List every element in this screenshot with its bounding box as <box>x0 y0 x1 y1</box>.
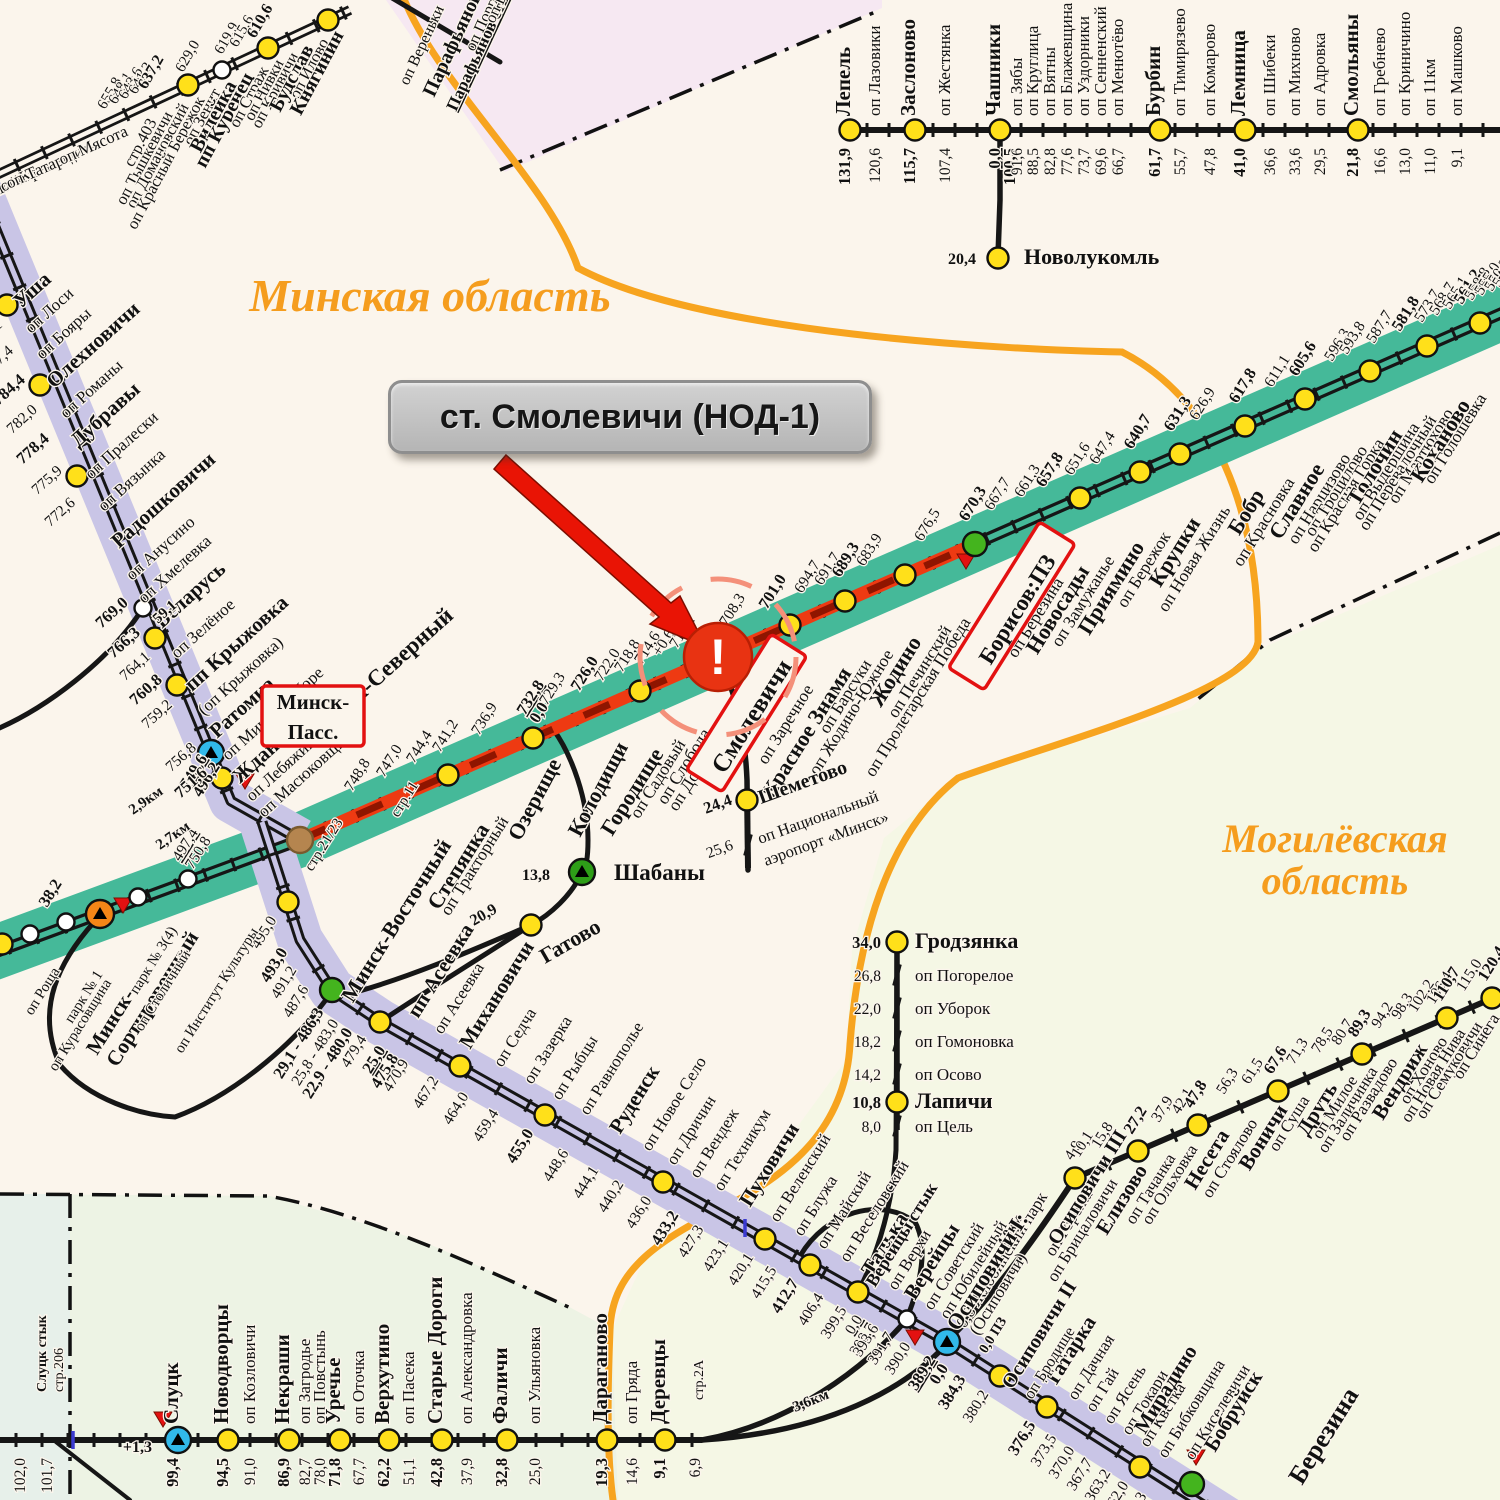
station-label: оп Ульяновка <box>525 1326 544 1424</box>
km-label: 41,0 <box>1230 148 1249 177</box>
km-label: 120,6 <box>867 148 884 183</box>
lepel-line-station-dot <box>1348 120 1369 141</box>
minsk-pass-box-text: Пасс. <box>288 720 339 744</box>
station-label: оп Комарово <box>1200 24 1219 116</box>
vileyka-nw-line-station-dot <box>214 62 231 79</box>
osipovichi-se-line-station-dot <box>848 1282 869 1303</box>
slutsk-line-station-dot <box>597 1430 618 1451</box>
km-label: 67,7 <box>351 1458 368 1485</box>
vendrizh-ne-line-station-dot <box>1482 988 1500 1009</box>
km-label: 107,4 <box>937 148 954 183</box>
station-label: Заслоново <box>896 19 920 116</box>
station-label: оп Козловичи <box>240 1325 259 1424</box>
km-label: 24,4 <box>701 790 735 818</box>
moscow-line-station-dot <box>22 926 39 943</box>
station-label: оп Гребнево <box>1370 28 1389 116</box>
station-label: Дараганово <box>588 1313 612 1424</box>
vileyka-nw-line-station-dot <box>178 75 199 96</box>
station-label: оп Адровка <box>1310 32 1329 116</box>
km-label: 101,7 <box>39 1458 56 1493</box>
km-label: 91,0 <box>242 1458 259 1485</box>
slutsk-line-station-dot <box>330 1430 351 1451</box>
slutsk-line-station-dot <box>218 1430 239 1451</box>
km-label: 26,8 <box>854 968 881 985</box>
osipovichi-se-line-station-dot <box>899 1311 916 1328</box>
lepel-line-station-dot <box>1150 120 1171 141</box>
callout-text: ст. Смолевичи (НОД-1) <box>440 398 820 437</box>
km-label: 16,6 <box>1372 148 1389 175</box>
slutsk-line-station-dot <box>655 1430 676 1451</box>
km-label: 25,0 <box>527 1458 544 1485</box>
map-label: 2,9км <box>126 784 166 819</box>
map-label: Шабаны <box>614 860 705 885</box>
station-label: Смольяны <box>1339 14 1363 116</box>
km-label: 772,6 <box>41 494 78 530</box>
exclamation-glyph: ! <box>710 629 727 685</box>
km-label: 775,9 <box>28 462 65 498</box>
moscow-line-station-dot <box>1360 361 1381 382</box>
shemetovo-line-station-dot <box>737 790 758 811</box>
pointer-arrow <box>494 455 706 647</box>
km-label: 32,8 <box>492 1458 511 1487</box>
station-label: оп Машково <box>1447 26 1466 116</box>
station-label: оп 11км <box>1420 59 1439 116</box>
station-label: Бурбин <box>1141 46 1165 116</box>
moscow-line-station-dot <box>58 914 75 931</box>
lepel-line-station-dot <box>1235 120 1256 141</box>
vendrizh-ne-line-station-dot <box>1128 1141 1149 1162</box>
station-label: Уречье <box>321 1358 345 1424</box>
km-label: 91,6 <box>1009 148 1026 175</box>
osipovichi-se-line-station-dot <box>755 1229 776 1250</box>
km-label: 13,0 <box>1397 148 1414 175</box>
station-label: оп Александровка <box>457 1292 476 1424</box>
station-label: оп Криничино <box>1395 12 1414 116</box>
hrodzianka-line-station-dot <box>887 1092 908 1113</box>
map-label: 13,8 <box>522 867 550 884</box>
km-label: 82,8 <box>1042 148 1059 175</box>
minsk-pass-box: Минск-Пасс. <box>262 686 364 746</box>
station-label: оп Шибеки <box>1260 35 1279 116</box>
station-label: Гродзянка <box>915 928 1018 953</box>
station-label: Слуцк <box>159 1361 183 1424</box>
moscow-line-station-dot <box>287 827 313 853</box>
km-label: 33,6 <box>1287 148 1304 175</box>
map-label: Новолукомль <box>1024 244 1160 269</box>
km-label: 22,0 <box>854 1001 881 1018</box>
km-label: 42,8 <box>427 1458 446 1487</box>
osipovichi-se-line-station-dot <box>1130 1457 1151 1478</box>
km-label: 69,6 <box>1093 148 1110 175</box>
station-label: Лемница <box>1226 30 1250 116</box>
km-label: 99,4 <box>163 1458 182 1487</box>
vileyka-nw-line-station-dot <box>258 38 279 59</box>
station-label: Лепель <box>831 47 855 116</box>
minsk-pass-box-text: Минск- <box>277 690 349 714</box>
km-label: 55,7 <box>1172 148 1189 175</box>
moscow-line-station-dot <box>0 934 13 955</box>
moscow-line-station-dot <box>963 532 987 556</box>
moscow-line-station-dot <box>130 889 147 906</box>
station-label: оп Гряда <box>622 1360 641 1424</box>
km-label: 66,7 <box>1110 148 1127 175</box>
slutsk-line-station-dot <box>497 1430 518 1451</box>
osipovichi-se-line-station-dot <box>535 1105 556 1126</box>
km-label: 88,5 <box>1025 148 1042 175</box>
station-label: оп Уборок <box>915 999 991 1018</box>
station-label: оп Оточка <box>349 1350 368 1424</box>
km-label: 14,2 <box>854 1067 881 1084</box>
moscow-line-station-dot <box>1070 488 1091 509</box>
moscow-line-station-dot <box>523 728 544 749</box>
km-label: 71,8 <box>325 1458 344 1487</box>
moscow-line-station-dot <box>180 871 197 888</box>
lepel-line-station-dot <box>990 120 1011 141</box>
moscow-line-station-dot <box>438 765 459 786</box>
moscow-line-station-dot <box>895 565 916 586</box>
station-label: Новодворцы <box>209 1304 233 1424</box>
railway-map: 38,2497,4750,8749,6496,2748,8747,0744,47… <box>0 0 1500 1500</box>
station-label: оп Цель <box>915 1117 973 1136</box>
km-label: 784,4 <box>0 370 29 409</box>
osipovichi-se-line-station-dot <box>278 892 299 913</box>
vendrizh-ne-line-station-dot <box>1268 1081 1289 1102</box>
station-label: оп Жестянка <box>935 24 954 116</box>
lepel-line-station-dot <box>840 120 861 141</box>
vendrizh-ne-line-station-dot <box>1352 1044 1373 1065</box>
gatovo-station-station-dot <box>521 915 542 936</box>
moscow-line-station-dot <box>1470 313 1491 334</box>
osipovichi-se-line-station-dot <box>450 1056 471 1077</box>
moscow-line-station-dot <box>1235 416 1256 437</box>
lepel-line-station-dot <box>905 120 926 141</box>
slutsk-line-station-dot <box>279 1430 300 1451</box>
station-label: Фаличи <box>488 1347 512 1424</box>
km-label: 9,1 <box>650 1458 669 1479</box>
km-label: 19,3 <box>592 1458 611 1487</box>
station-label: оп Пасека <box>399 1351 418 1424</box>
map-label: +1,3 <box>123 1439 152 1456</box>
map-label: Гатово <box>535 914 605 969</box>
osipovichi-se-line-station-dot <box>1180 1472 1204 1496</box>
km-label: 21,8 <box>1343 148 1362 177</box>
km-label: 34,0 <box>852 933 881 952</box>
km-label: 25,6 <box>704 837 736 862</box>
station-label: Старые Дороги <box>423 1277 447 1424</box>
km-label: 629,0 <box>173 38 204 75</box>
map-label: Слуцк стык <box>35 1314 50 1392</box>
slutsk-line-station-dot <box>379 1430 400 1451</box>
station-label: оп Лазовики <box>865 25 884 116</box>
moscow-line-station-dot <box>1130 462 1151 483</box>
moscow-line-station-dot <box>1295 389 1316 410</box>
map-label: стр.2А <box>692 1359 707 1400</box>
km-label: 115,7 <box>900 148 919 184</box>
osipovichi-se-line-station-dot <box>800 1255 821 1276</box>
km-label: 86,9 <box>274 1458 293 1487</box>
moscow-line-station-dot <box>835 591 856 612</box>
smolevichi-callout: ст. Смолевичи (НОД-1) <box>388 380 872 454</box>
station-label: оп Гомоновка <box>915 1032 1014 1051</box>
km-label: 77,6 <box>1059 148 1076 175</box>
station-label: оп Тимирязево <box>1170 8 1189 116</box>
novolukoml-station-station-dot <box>988 248 1009 269</box>
km-label: 94,5 <box>213 1458 232 1487</box>
station-label: оп Погорелое <box>915 966 1013 985</box>
station-label: Верхутино <box>370 1324 394 1424</box>
km-label: 62,2 <box>374 1458 393 1487</box>
km-label: 102,0 <box>12 1458 29 1493</box>
km-label: 10,8 <box>852 1093 881 1112</box>
km-label: 37,9 <box>459 1458 476 1485</box>
map-label: 20,9 <box>467 901 500 930</box>
moscow-line-station-dot <box>1417 336 1438 357</box>
osipovichi-se-line-station-dot <box>370 1012 391 1033</box>
km-label: 9,1 <box>1449 148 1466 167</box>
km-label: 73,7 <box>1076 148 1093 175</box>
moscow-line-station-dot <box>1170 444 1191 465</box>
km-label: 14,6 <box>624 1458 641 1485</box>
station-label: оп Менютёво <box>1108 19 1127 116</box>
map-canvas: 38,2497,4750,8749,6496,2748,8747,0744,47… <box>0 0 1500 1500</box>
station-label: оп Осово <box>915 1065 982 1084</box>
station-label: Некраши <box>270 1334 294 1424</box>
km-label: 131,9 <box>835 148 854 185</box>
km-label: 778,4 <box>12 429 52 468</box>
km-label: 8,0 <box>862 1119 882 1136</box>
slutsk-line-station-dot <box>432 1430 453 1451</box>
osipovichi-se-line-station-dot <box>1037 1397 1058 1418</box>
station-label: оп Михново <box>1285 27 1304 116</box>
km-label: 29,5 <box>1312 148 1329 175</box>
station-label: Чашники <box>981 24 1005 116</box>
km-label: 47,8 <box>1202 148 1219 175</box>
km-label: 6,9 <box>687 1458 704 1478</box>
map-label: оп Роща <box>22 964 64 1018</box>
vendrizh-ne-line-station-dot <box>1437 1008 1458 1029</box>
station-label: Лапичи <box>915 1088 993 1113</box>
vendrizh-ne-line-station-dot <box>1188 1115 1209 1136</box>
km-label: 51,1 <box>401 1458 418 1485</box>
station-label: Деревцы <box>646 1339 670 1424</box>
hrodzianka-line-station-dot <box>887 932 908 953</box>
km-label: 11,0 <box>1422 148 1439 175</box>
km-label: 18,2 <box>854 1034 881 1051</box>
osipovichi-se-line-station-dot <box>653 1172 674 1193</box>
map-label: 20,4 <box>948 251 976 268</box>
km-label: 61,7 <box>1145 148 1164 177</box>
km-label: 36,6 <box>1262 148 1279 175</box>
map-label: стр.206 <box>52 1348 67 1392</box>
